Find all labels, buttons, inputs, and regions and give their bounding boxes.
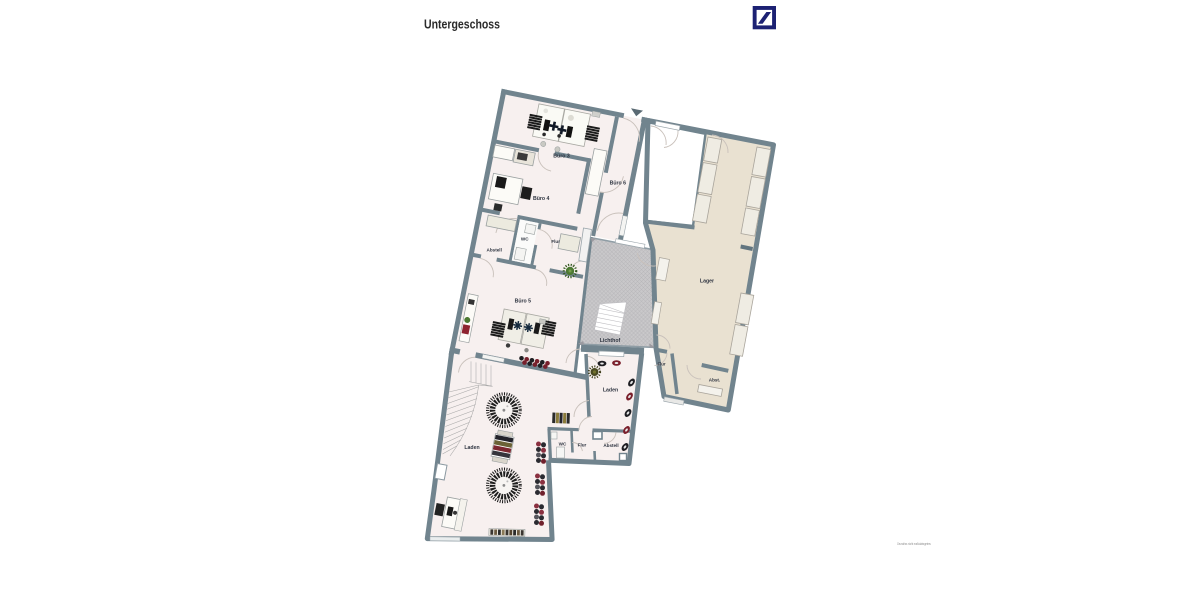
svg-text:Abstell: Abstell	[487, 247, 502, 252]
svg-text:Büro 6: Büro 6	[610, 180, 627, 186]
svg-text:Flur: Flur	[657, 362, 665, 367]
svg-text:Abst.: Abst.	[709, 378, 720, 383]
svg-text:Büro 3: Büro 3	[553, 153, 570, 159]
svg-text:Lichthof: Lichthof	[600, 338, 621, 344]
svg-text:Büro 4: Büro 4	[533, 196, 550, 202]
svg-text:Flur: Flur	[578, 443, 587, 448]
svg-text:WC: WC	[521, 237, 529, 242]
svg-text:Büro 5: Büro 5	[515, 299, 532, 305]
svg-text:Lager: Lager	[700, 279, 714, 285]
svg-text:WC: WC	[559, 442, 567, 447]
svg-text:Laden: Laden	[603, 388, 618, 394]
svg-text:Grundriss nicht maßstabsgetreu: Grundriss nicht maßstabsgetreu	[897, 542, 931, 546]
svg-text:Abstell: Abstell	[603, 443, 618, 448]
svg-text:Untergeschoss: Untergeschoss	[424, 17, 500, 32]
svg-text:Laden: Laden	[464, 445, 479, 451]
svg-text:Flur: Flur	[551, 239, 560, 244]
